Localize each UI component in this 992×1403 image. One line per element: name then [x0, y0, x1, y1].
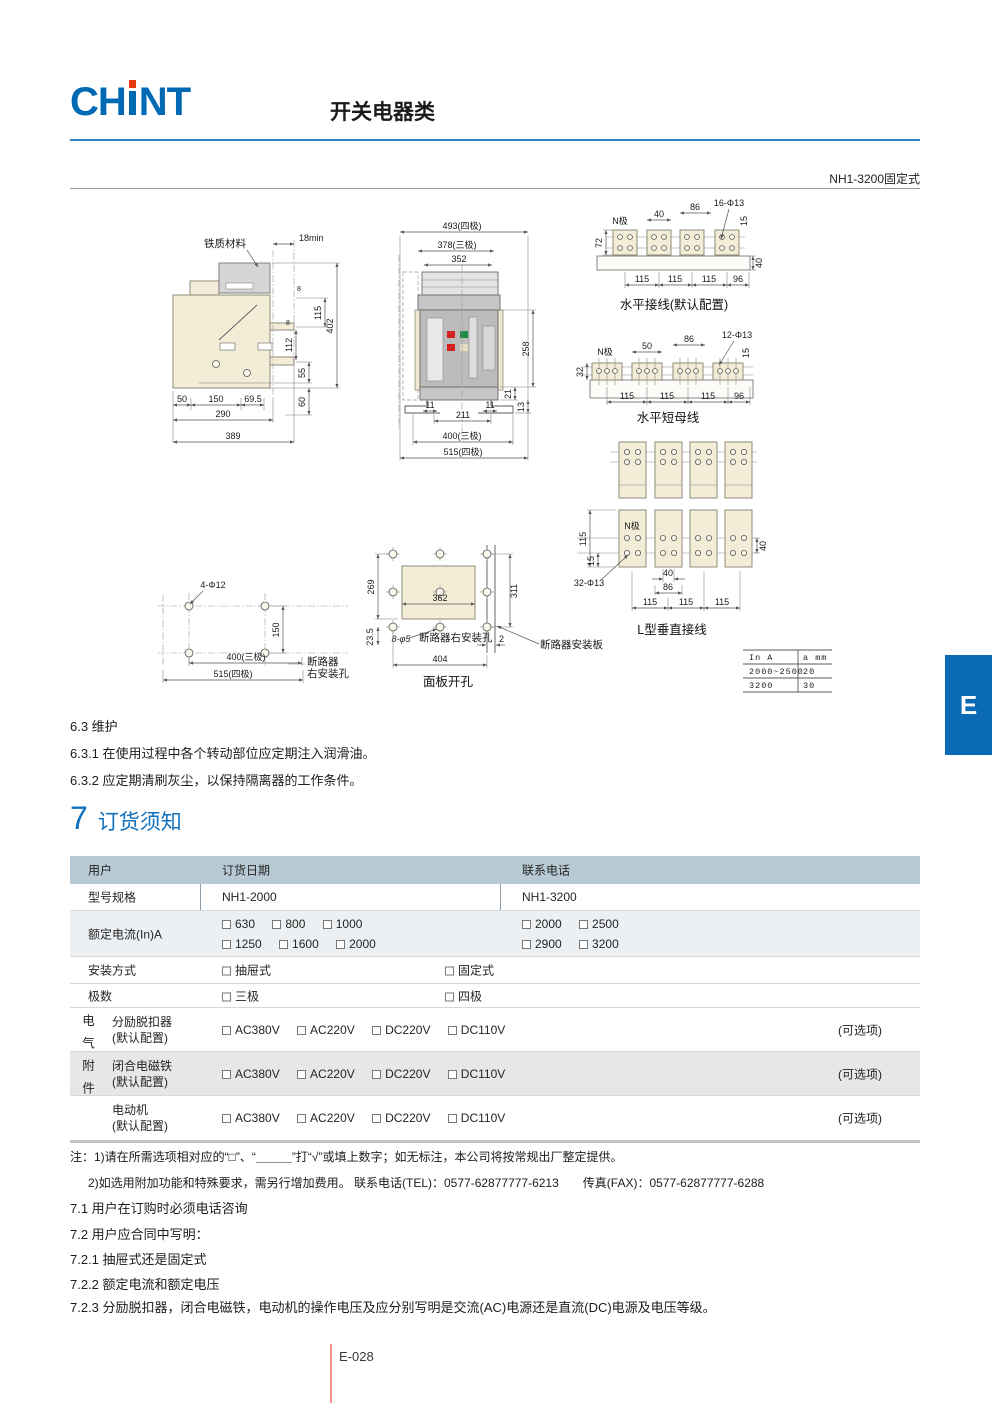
header-rule: [70, 139, 920, 141]
checkbox: [222, 920, 231, 929]
checkbox: [297, 1114, 306, 1123]
option-label: 2900: [535, 937, 562, 951]
drawing-title: 水平接线(默认配置): [620, 297, 728, 312]
maintenance-item: 6.3.1 在使用过程中各个转动部位应定期注入润滑油。: [70, 743, 376, 762]
option-label: 630: [235, 917, 255, 931]
checkbox-option: 800: [272, 917, 305, 931]
dim-label: 11: [485, 400, 494, 410]
logo-text-left: CH: [70, 80, 126, 124]
maintenance-heading: 6.3 维护: [70, 716, 118, 735]
spec-cell: 3200: [749, 681, 773, 691]
drawing-side-view: 铁质材料 18min 402 115 8 8 112 55 60 50: [173, 233, 340, 443]
dim-label: 8: [297, 286, 301, 293]
dim-label: 352: [451, 254, 466, 264]
section-tab-e: E: [945, 655, 992, 755]
row-label: 极数: [88, 987, 112, 1004]
dim-label: 13: [516, 402, 526, 412]
annotation: 断路器右安装孔: [419, 631, 493, 644]
checkbox: [222, 1026, 231, 1035]
checkbox-option: 1600: [279, 937, 319, 951]
spec-col-header: a mm: [803, 653, 827, 663]
dim-label: 86: [663, 582, 673, 592]
checkbox: [222, 940, 231, 949]
checkbox-option: AC220V: [297, 1067, 355, 1081]
row-label: 型号规格: [88, 889, 136, 906]
option-label: 1250: [235, 937, 262, 951]
checkbox-option: DC110V: [448, 1067, 505, 1081]
drawing-title: L型垂直接线: [637, 622, 707, 637]
accessory-name: 闭合电磁铁 (默认配置): [112, 1058, 172, 1090]
dim-label: 16-Φ13: [714, 198, 744, 208]
checkbox-option: 抽屉式: [222, 962, 271, 979]
checkbox-option: DC110V: [448, 1023, 505, 1037]
ordering-item: 7.2 用户应合同中写明：: [70, 1224, 209, 1243]
dim-label: 69.5: [244, 394, 262, 404]
product-label: NH1-3200固定式: [620, 170, 920, 187]
page-number: E-028: [339, 1349, 374, 1364]
dim-label: 11: [425, 400, 434, 410]
dim-label: 60: [297, 397, 307, 407]
ordering-item: 7.2.1 抽屉式还是固定式: [70, 1249, 207, 1268]
model-right: NH1-3200: [522, 890, 577, 904]
checkbox-option: AC380V: [222, 1111, 280, 1125]
dim-label: 40: [663, 568, 673, 578]
checkbox-option: AC220V: [297, 1111, 355, 1125]
note-line: 2)如选用附加功能和特殊要求，需另行增加费用。 联系电话(TEL)：0577-6…: [88, 1174, 764, 1191]
checkbox: [222, 967, 231, 976]
dim-label: 269: [366, 579, 376, 594]
option-label: AC380V: [235, 1067, 280, 1081]
section-number: 7: [70, 800, 88, 836]
table-row-motor: 电动机 (默认配置) AC380V AC220V DC220V DC110V (…: [70, 1096, 920, 1140]
checkbox: [445, 992, 454, 1001]
table-row-poles: 极数 三极 四极: [70, 984, 920, 1008]
option-label: DC110V: [461, 1023, 505, 1037]
dim-label: 50: [642, 341, 652, 351]
option-label: 三极: [235, 989, 259, 1003]
checkbox-option: 2500: [579, 917, 619, 931]
ordering-table: 用户 订货日期 联系电话 型号规格 NH1-2000 NH1-3200 额定电流…: [70, 856, 920, 1143]
dim-label: 150: [271, 622, 281, 637]
checkbox-option: 三极: [222, 987, 259, 1004]
checkbox: [222, 992, 231, 1001]
table-row-rated-current: 额定电流(In)A 630 800 1000 1250 1600 2000 20…: [70, 911, 920, 957]
dim-label: 15: [586, 556, 596, 566]
dim-label: 112: [284, 338, 294, 352]
dim-label: 115: [313, 306, 323, 320]
checkbox: [372, 1026, 381, 1035]
drawing-l-vertical: N极 115 15 32-Φ13 40 86 115 115 115 40 L型…: [574, 442, 768, 637]
spec-cell: 2000~2500: [749, 667, 804, 677]
maintenance-item: 6.3.2 应定期清刷灰尘，以保持隔离器的工作条件。: [70, 770, 363, 789]
dim-label: 400(三极): [442, 430, 481, 441]
spec-table: In A a mm 2000~2500 20 3200 30: [743, 650, 832, 692]
option-label: 2000: [349, 937, 376, 951]
accessory-options: AC380V AC220V DC220V DC110V: [222, 1023, 519, 1037]
section-heading: 7订货须知: [70, 800, 182, 837]
option-label: 1600: [292, 937, 319, 951]
checkbox: [272, 920, 281, 929]
dim-label: 21: [503, 389, 513, 399]
optional-note: (可选项): [838, 1065, 882, 1082]
dim-label: 40: [754, 258, 764, 268]
drawing-front-view: 493(四极) 378(三极) 352 258 21 13 11 11 211 …: [399, 220, 536, 461]
dim-label: 55: [297, 368, 307, 378]
annotation: 断路器安装板: [540, 638, 603, 651]
dim-label: 40: [654, 209, 664, 219]
option-label: AC220V: [310, 1023, 355, 1037]
accessory-name-text: 分励脱扣器: [112, 1014, 172, 1030]
checkbox: [297, 1070, 306, 1079]
checkbox-option: AC220V: [297, 1023, 355, 1037]
accessory-options: AC380V AC220V DC220V DC110V: [222, 1111, 519, 1125]
option-label: DC220V: [385, 1111, 430, 1125]
checkbox: [372, 1070, 381, 1079]
current-options-left: 630 800 1000 1250 1600 2000: [222, 914, 390, 954]
pole-label: N极: [624, 520, 640, 531]
header-contact: 联系电话: [522, 862, 570, 879]
spec-cell: 20: [803, 667, 815, 677]
table-row-closing-coil: 闭合电磁铁 (默认配置) AC380V AC220V DC220V DC110V…: [70, 1052, 920, 1096]
dim-label: 404: [432, 654, 447, 664]
checkbox: [522, 940, 531, 949]
checkbox: [579, 920, 588, 929]
accessory-name: 分励脱扣器 (默认配置): [112, 1014, 172, 1046]
subheader-rule: [70, 188, 920, 189]
ordering-item: 7.2.3 分励脱扣器，闭合电磁铁，电动机的操作电压及应分别写明是交流(AC)电…: [70, 1297, 716, 1316]
pole-label: N极: [612, 215, 628, 226]
dim-label: 290: [215, 409, 230, 419]
annotation: 右安装孔: [307, 667, 349, 680]
dim-label: 86: [690, 202, 700, 212]
spec-cell: 30: [803, 681, 815, 691]
checkbox: [448, 1114, 457, 1123]
dim-label: 15: [741, 348, 751, 358]
dim-label: 115: [701, 391, 715, 401]
option-label: DC110V: [461, 1067, 505, 1081]
option-label: 3200: [592, 937, 619, 951]
dim-label: 493(四极): [442, 220, 481, 231]
header-order-date: 订货日期: [222, 862, 270, 879]
dim-label: 115: [620, 391, 634, 401]
checkbox-option: 1000: [323, 917, 363, 931]
dim-label: 211: [456, 410, 470, 420]
drawing-panel-cutout: 269 311 362 23.5 8-φ5 断路器右安装孔 2 断路器安装板 4…: [365, 545, 603, 689]
table-row-mounting: 安装方式 抽屉式 固定式: [70, 957, 920, 984]
option-label: 2500: [592, 917, 619, 931]
datasheet-page: CHNT 开关电器类 NH1-3200固定式 铁质材料 1: [0, 0, 992, 1403]
category-title: 开关电器类: [330, 96, 435, 126]
dim-label: 32-Φ13: [574, 578, 604, 588]
option-label: 固定式: [458, 964, 494, 978]
logo-text-right: NT: [139, 80, 190, 124]
ordering-item: 7.1 用户在订购时必须电话咨询: [70, 1198, 248, 1217]
dim-label: 115: [679, 597, 693, 607]
accessory-name-text: 闭合电磁铁: [112, 1058, 172, 1074]
dim-label: 115: [635, 274, 649, 284]
checkbox: [448, 1026, 457, 1035]
checkbox-option: 3200: [579, 937, 619, 951]
dim-label: 115: [643, 597, 657, 607]
accessories-group-label: 电气附件: [78, 1014, 97, 1104]
optional-note: (可选项): [838, 1021, 882, 1038]
checkbox: [448, 1070, 457, 1079]
dim-label: 515(四极): [213, 668, 252, 679]
option-label: DC220V: [385, 1067, 430, 1081]
dim-label: 23.5: [365, 628, 375, 646]
checkbox: [279, 940, 288, 949]
ordering-item: 7.2.2 额定电流和额定电压: [70, 1274, 220, 1293]
option-label: AC380V: [235, 1023, 280, 1037]
header-user: 用户: [88, 862, 112, 879]
checkbox-option: 630: [222, 917, 255, 931]
option-label: 800: [285, 917, 305, 931]
checkbox-option: 1250: [222, 937, 262, 951]
table-row-shunt-release: 分励脱扣器 (默认配置) AC380V AC220V DC220V DC110V…: [70, 1008, 920, 1052]
dim-label: 18min: [299, 233, 324, 243]
logo-i-icon: [129, 91, 136, 115]
model-left: NH1-2000: [222, 890, 277, 904]
dim-label: 72: [594, 238, 604, 248]
dim-label: 96: [734, 391, 744, 401]
row-label: 安装方式: [88, 962, 136, 979]
brand-logo: CHNT: [70, 82, 190, 122]
footer-rule: [330, 1344, 332, 1403]
checkbox-option: 四极: [445, 987, 482, 1004]
dim-label: 389: [225, 431, 240, 441]
checkbox-option: DC220V: [372, 1067, 430, 1081]
checkbox: [323, 920, 332, 929]
annotation: 断路器: [307, 655, 339, 668]
dim-label: 115: [668, 274, 682, 284]
dim-label: 150: [208, 394, 223, 404]
option-label: 2000: [535, 917, 562, 931]
row-label: 额定电流(In)A: [88, 925, 162, 942]
table-header-row: 用户 订货日期 联系电话: [70, 856, 920, 884]
drawing-title: 面板开孔: [423, 675, 474, 689]
note-line: 注：1)请在所需选项相对应的“□”、“＿＿＿”打“√”或填上数字；如无标注，本公…: [70, 1148, 622, 1165]
checkbox-option: DC220V: [372, 1111, 430, 1125]
checkbox: [522, 920, 531, 929]
dim-label: 258: [521, 341, 531, 356]
optional-note: (可选项): [838, 1110, 882, 1127]
dim-label: 86: [684, 334, 694, 344]
checkbox: [445, 967, 454, 976]
accessory-default-text: (默认配置): [112, 1030, 172, 1046]
dim-label: 96: [733, 274, 743, 284]
dim-label: 311: [509, 584, 519, 598]
dim-label: 378(三极): [437, 239, 476, 250]
dim-label: 40: [758, 541, 768, 551]
dim-label: 115: [702, 274, 716, 284]
option-label: AC220V: [310, 1067, 355, 1081]
material-label: 铁质材料: [204, 237, 246, 250]
checkbox: [372, 1114, 381, 1123]
accessory-default-text: (默认配置): [112, 1074, 172, 1090]
current-options-right: 2000 2500 2900 3200: [522, 914, 633, 954]
checkbox-option: DC110V: [448, 1111, 505, 1125]
dim-label: 8: [286, 320, 290, 327]
accessory-name: 电动机 (默认配置): [112, 1102, 168, 1134]
option-label: 四极: [458, 989, 482, 1003]
checkbox-option: 固定式: [445, 962, 494, 979]
dim-label: 15: [739, 216, 749, 226]
checkbox-option: DC220V: [372, 1023, 430, 1037]
checkbox-option: AC380V: [222, 1023, 280, 1037]
section-title: 订货须知: [98, 811, 182, 834]
accessory-options: AC380V AC220V DC220V DC110V: [222, 1067, 519, 1081]
checkbox-option: 2000: [336, 937, 376, 951]
option-label: 1000: [336, 917, 363, 931]
dim-label: 8-φ5: [392, 634, 412, 644]
pole-label: N极: [597, 346, 613, 357]
dim-label: 115: [715, 597, 729, 607]
drawing-horizontal-busbar: N极 50 86 12-Φ13 15 32 115 115 115 96 水平短…: [575, 330, 753, 425]
dim-label: 362: [432, 593, 447, 603]
checkbox-option: AC380V: [222, 1067, 280, 1081]
checkbox: [222, 1070, 231, 1079]
option-label: DC220V: [385, 1023, 430, 1037]
drawing-title: 水平短母线: [637, 411, 700, 425]
accessory-default-text: (默认配置): [112, 1118, 168, 1134]
dim-label: 515(四极): [443, 446, 482, 457]
dim-label: 12-Φ13: [722, 330, 752, 340]
checkbox: [222, 1114, 231, 1123]
technical-drawings: 铁质材料 18min 402 115 8 8 112 55 60 50: [0, 195, 992, 705]
dim-label: 402: [325, 318, 335, 333]
option-label: AC380V: [235, 1111, 280, 1125]
checkbox: [297, 1026, 306, 1035]
option-label: AC220V: [310, 1111, 355, 1125]
checkbox: [579, 940, 588, 949]
dim-label: 2: [499, 634, 504, 644]
checkbox-option: 2000: [522, 917, 562, 931]
table-row-model: 型号规格 NH1-2000 NH1-3200: [70, 884, 920, 911]
dim-label: 50: [177, 394, 187, 404]
checkbox: [336, 940, 345, 949]
accessory-name-text: 电动机: [112, 1102, 168, 1118]
option-label: DC110V: [461, 1111, 505, 1125]
dim-label: 115: [660, 391, 674, 401]
spec-col-header: In A: [749, 653, 773, 663]
option-label: 抽屉式: [235, 964, 271, 978]
checkbox-option: 2900: [522, 937, 562, 951]
dim-label: 4-Φ12: [200, 580, 225, 590]
drawing-mounting-holes: 4-Φ12 150 400(三极) 515(四极) 断路器 右安装孔: [158, 580, 349, 683]
dim-label: 115: [578, 532, 588, 546]
dim-label: 32: [575, 367, 585, 377]
dim-label: 400(三极): [226, 651, 265, 662]
drawing-horizontal-wiring: N极 40 86 16-Φ13 15 72 40 115 115 115 96 …: [594, 198, 764, 312]
